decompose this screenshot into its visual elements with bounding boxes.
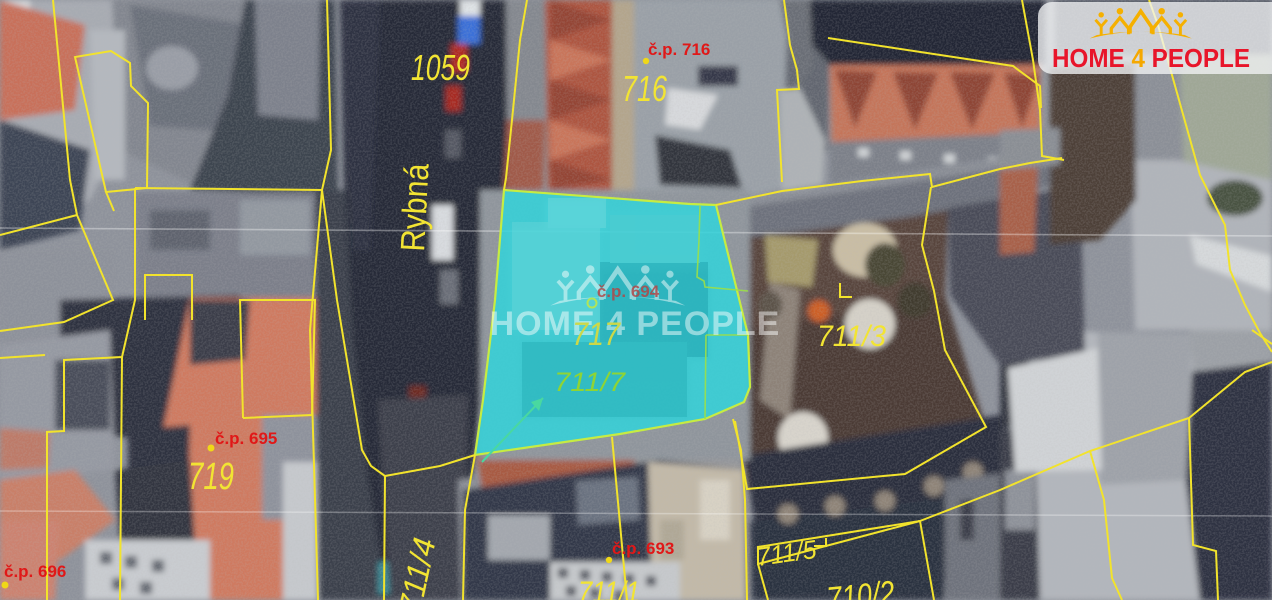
svg-text:HOME 4 PEOPLE: HOME 4 PEOPLE — [490, 305, 781, 343]
svg-text:711/7: 711/7 — [554, 367, 626, 397]
svg-text:711/3: 711/3 — [817, 320, 886, 353]
svg-text:Rybná: Rybná — [394, 162, 437, 252]
svg-text:č.p. 695: č.p. 695 — [215, 429, 277, 448]
svg-text:HOME 4 PEOPLE: HOME 4 PEOPLE — [1052, 43, 1250, 73]
svg-text:č.p. 696: č.p. 696 — [4, 562, 66, 581]
svg-text:č.p. 716: č.p. 716 — [648, 40, 710, 59]
svg-text:717: 717 — [572, 316, 621, 352]
svg-text:716: 716 — [622, 68, 668, 109]
svg-text:č.p. 694: č.p. 694 — [597, 282, 660, 301]
svg-text:711/1: 711/1 — [578, 576, 640, 600]
svg-text:1059: 1059 — [411, 47, 470, 88]
svg-text:č.p. 693: č.p. 693 — [612, 539, 674, 558]
svg-text:719: 719 — [188, 456, 234, 498]
